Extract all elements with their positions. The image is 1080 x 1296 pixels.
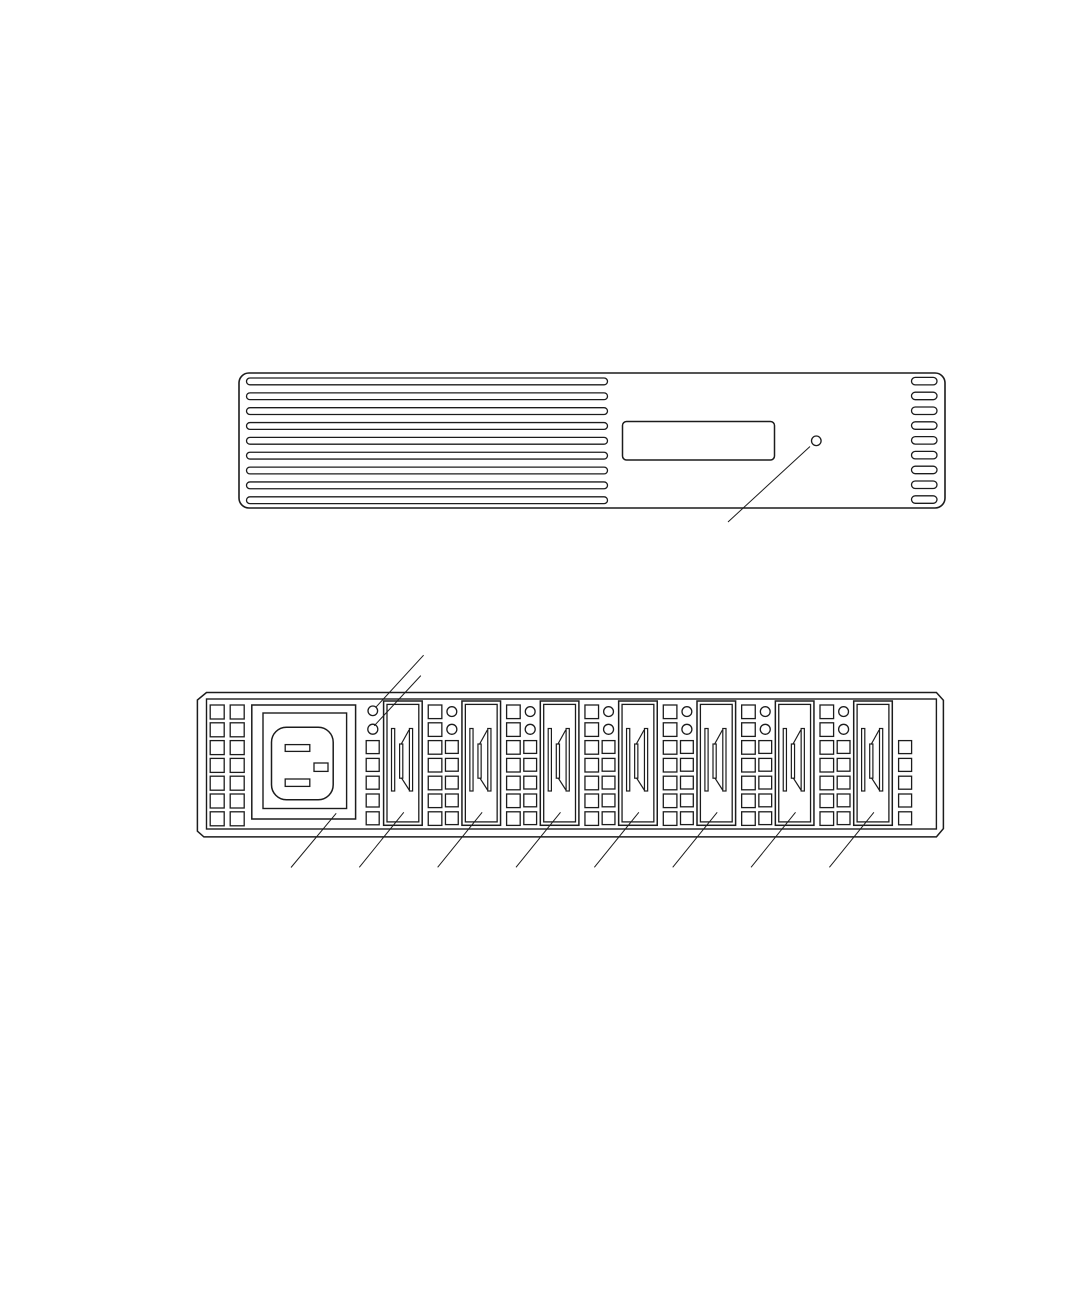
vent-hole: [428, 794, 442, 808]
vent-hole: [742, 794, 756, 808]
status-led: [839, 724, 849, 734]
vent-slot: [247, 482, 608, 489]
vent-led-columns-2: [428, 705, 458, 825]
vent-slot: [247, 378, 608, 385]
vent-hole: [681, 758, 694, 771]
leader-lines-top: [374, 655, 423, 726]
rear-panel-bezel: [197, 693, 943, 837]
icon-diagonal-top: [636, 730, 644, 745]
status-led: [812, 436, 822, 446]
vent-hole: [602, 812, 615, 825]
vent-hole: [507, 776, 521, 790]
vent-slot: [247, 393, 608, 400]
module-connector-icon: [705, 729, 726, 792]
vent-hole: [759, 776, 772, 789]
vent-hole: [742, 812, 756, 826]
vent-slot: [912, 466, 938, 474]
module-connector-icon: [392, 729, 413, 792]
vent-slot: [912, 392, 938, 400]
figure-front-panel: [239, 373, 945, 522]
vent-hole: [602, 758, 615, 771]
vent-hole: [663, 794, 677, 808]
leader-line-module-6: [751, 812, 796, 867]
vent-hole: [230, 776, 244, 790]
vent-hole: [585, 758, 599, 772]
vent-hole: [820, 723, 834, 737]
icon-bar-middle: [870, 744, 873, 778]
icon-bar-left: [862, 729, 865, 792]
vent-hole: [899, 794, 912, 807]
status-led: [368, 724, 378, 734]
module-connector-icon: [627, 729, 648, 792]
vent-hole: [820, 776, 834, 790]
icon-bar-left: [392, 729, 395, 792]
module-slot-4: [619, 701, 658, 825]
vent-hole: [759, 812, 772, 825]
icon-diagonal-bottom: [558, 778, 566, 790]
status-led: [447, 724, 457, 734]
vent-slot: [912, 377, 938, 385]
module-connector-icon: [470, 729, 491, 792]
manual-page: [0, 0, 1080, 1296]
vent-hole: [524, 758, 537, 771]
vent-hole: [602, 741, 615, 754]
vent-slot: [247, 452, 608, 459]
vent-hole: [820, 812, 834, 826]
vent-hole: [820, 705, 834, 719]
vent-hole: [899, 741, 912, 754]
status-led: [525, 724, 535, 734]
icon-bar-right: [801, 729, 804, 792]
vent-hole: [428, 741, 442, 755]
power-inlet-pin-bottom: [285, 779, 310, 786]
vent-hole: [230, 758, 244, 772]
vent-slot: [912, 496, 938, 504]
power-inlet-frame-outer: [252, 705, 356, 819]
vent-hole: [445, 741, 458, 754]
vent-hole: [210, 723, 224, 737]
indicator-column-1: [366, 706, 379, 825]
vent-slot: [912, 451, 938, 459]
vent-hole: [507, 794, 521, 808]
vent-hole: [524, 812, 537, 825]
icon-diagonal-bottom: [401, 778, 409, 790]
leader-line-module-2: [438, 812, 483, 867]
icon-bar-left: [783, 729, 786, 792]
vent-hole: [230, 741, 244, 755]
vent-hole: [585, 705, 599, 719]
vent-hole: [210, 705, 224, 719]
vent-hole: [742, 758, 756, 772]
icon-bar-middle: [556, 744, 559, 778]
vent-hole: [585, 776, 599, 790]
vent-hole: [663, 705, 677, 719]
module-connector-icon: [548, 729, 569, 792]
vent-slot: [247, 497, 608, 504]
vent-hole: [428, 812, 442, 826]
vent-hole: [210, 776, 224, 790]
icon-diagonal-top: [793, 730, 801, 745]
vent-hole: [524, 741, 537, 754]
vent-led-columns-3: [507, 705, 537, 825]
status-led: [447, 707, 457, 717]
leader-line-module-7: [829, 812, 874, 867]
leader-line-power-inlet: [291, 813, 336, 867]
vent-hole: [681, 794, 694, 807]
vent-hole: [230, 812, 244, 826]
vent-hole: [366, 776, 379, 789]
leader-line-module-5: [673, 812, 718, 867]
leader-line-module-4: [594, 812, 639, 867]
icon-bar-middle: [713, 744, 716, 778]
vent-hole: [837, 776, 850, 789]
front-vent-slots-right: [912, 377, 938, 503]
vent-hole: [210, 741, 224, 755]
icon-bar-right: [644, 729, 647, 792]
front-vent-slots-left: [247, 378, 608, 504]
icon-bar-left: [470, 729, 473, 792]
vent-hole: [445, 776, 458, 789]
label-plate: [623, 422, 775, 461]
vent-slot: [912, 481, 938, 489]
vent-hole: [507, 758, 521, 772]
vent-led-columns-4: [585, 705, 615, 825]
icon-diagonal-bottom: [715, 778, 723, 790]
vent-hole: [507, 705, 521, 719]
vent-hole: [507, 741, 521, 755]
icon-diagonal-top: [479, 730, 487, 745]
vent-hole: [366, 812, 379, 825]
vent-hole: [366, 741, 379, 754]
icon-bar-right: [409, 729, 412, 792]
vent-hole: [230, 794, 244, 808]
vent-hole: [759, 758, 772, 771]
module-slot-1: [384, 701, 423, 825]
vent-hole: [820, 794, 834, 808]
vent-hole: [663, 758, 677, 772]
vent-hole: [210, 812, 224, 826]
status-led: [760, 724, 770, 734]
vent-hole: [366, 758, 379, 771]
vent-hole: [210, 758, 224, 772]
vent-hole: [507, 812, 521, 826]
icon-diagonal-bottom: [872, 778, 880, 790]
vent-hole: [681, 812, 694, 825]
vent-hole: [663, 776, 677, 790]
vent-hole: [230, 723, 244, 737]
vent-hole: [585, 741, 599, 755]
status-led: [682, 724, 692, 734]
icon-bar-right: [880, 729, 883, 792]
icon-diagonal-top: [558, 730, 566, 745]
vent-hole: [681, 741, 694, 754]
vent-hole: [585, 794, 599, 808]
hardware-illustration: [0, 0, 1080, 1296]
icon-bar-middle: [635, 744, 638, 778]
vent-hole: [681, 776, 694, 789]
vent-hole: [428, 723, 442, 737]
vent-slot: [247, 423, 608, 430]
vent-hole: [663, 812, 677, 826]
vent-hole: [759, 741, 772, 754]
power-inlet-pin-ground: [314, 763, 328, 771]
leader-lines-bottom: [291, 812, 874, 867]
module-slot-6: [775, 701, 814, 825]
vent-hole: [524, 776, 537, 789]
vent-hole: [428, 705, 442, 719]
left-vent-grid: [210, 705, 244, 826]
vent-hole: [742, 705, 756, 719]
status-led: [760, 707, 770, 717]
vent-slot: [912, 422, 938, 430]
module-slot-3: [540, 701, 579, 825]
vent-hole: [602, 776, 615, 789]
vent-hole: [742, 723, 756, 737]
vent-hole: [428, 758, 442, 772]
module-connector-icon: [862, 729, 883, 792]
status-led: [604, 707, 614, 717]
vent-slot: [912, 407, 938, 415]
icon-diagonal-bottom: [793, 778, 801, 790]
vent-hole: [663, 723, 677, 737]
vent-hole: [210, 794, 224, 808]
icon-bar-left: [627, 729, 630, 792]
icon-bar-middle: [478, 744, 481, 778]
vent-hole: [524, 794, 537, 807]
leader-line-status-led: [728, 447, 810, 523]
status-led: [525, 707, 535, 717]
icon-diagonal-top: [871, 730, 879, 745]
right-vent-column: [899, 741, 912, 825]
vent-hole: [837, 812, 850, 825]
icon-diagonal-bottom: [636, 778, 644, 790]
icon-diagonal-bottom: [480, 778, 488, 790]
icon-diagonal-top: [401, 730, 409, 745]
vent-hole: [899, 758, 912, 771]
vent-hole: [837, 758, 850, 771]
status-led: [839, 707, 849, 717]
vent-led-columns-7: [820, 705, 850, 825]
status-led: [682, 707, 692, 717]
vent-hole: [445, 794, 458, 807]
module-slot-5: [697, 701, 736, 825]
vent-hole: [663, 741, 677, 755]
power-inlet: [252, 705, 356, 819]
vent-hole: [742, 741, 756, 755]
vent-slot: [247, 408, 608, 415]
icon-bar-right: [566, 729, 569, 792]
vent-hole: [759, 794, 772, 807]
icon-bar-left: [705, 729, 708, 792]
status-led: [604, 724, 614, 734]
vent-hole: [820, 741, 834, 755]
module-slot-7: [854, 701, 893, 825]
vent-slot: [247, 437, 608, 444]
icon-bar-middle: [400, 744, 403, 778]
icon-bar-right: [723, 729, 726, 792]
module-connector-icon: [783, 729, 804, 792]
vent-hole: [507, 723, 521, 737]
vent-hole: [837, 741, 850, 754]
icon-bar-left: [548, 729, 551, 792]
vent-hole: [899, 812, 912, 825]
vent-led-columns-6: [742, 705, 772, 825]
module-slot-2: [462, 701, 501, 825]
vent-hole: [820, 758, 834, 772]
vent-hole: [366, 794, 379, 807]
power-inlet-pin-top: [285, 745, 310, 752]
vent-slot: [247, 467, 608, 474]
figure-rear-panel: [197, 655, 943, 867]
vent-hole: [428, 776, 442, 790]
leader-line-module-3: [516, 812, 561, 867]
vent-hole: [585, 812, 599, 826]
vent-hole: [230, 705, 244, 719]
icon-diagonal-top: [714, 730, 722, 745]
icon-bar-right: [488, 729, 491, 792]
vent-led-columns-5: [663, 705, 693, 825]
vent-hole: [899, 776, 912, 789]
vent-slot: [912, 437, 938, 445]
vent-hole: [837, 794, 850, 807]
vent-hole: [602, 794, 615, 807]
icon-bar-middle: [791, 744, 794, 778]
vent-hole: [445, 812, 458, 825]
vent-hole: [585, 723, 599, 737]
vent-hole: [742, 776, 756, 790]
vent-hole: [445, 758, 458, 771]
